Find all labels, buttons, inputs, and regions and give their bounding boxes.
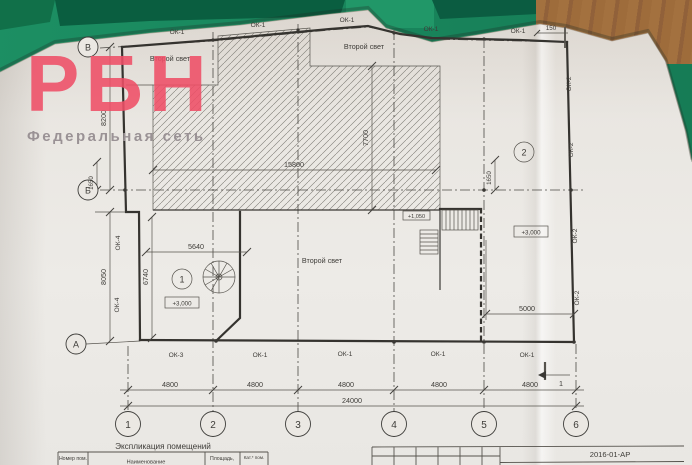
- schedule-table: Экспликация помещений Номер пом. Наимено…: [58, 442, 268, 465]
- dim-label: 4800: [431, 380, 447, 389]
- spiral-stair: [203, 261, 235, 293]
- photo-of-floor-plan: 1 1 2 3 4 5 6 В Б А 1 +3,000 2: [0, 0, 692, 465]
- schedule-header: Площадь,: [210, 456, 234, 462]
- dim-label: 1650: [88, 176, 95, 190]
- second-light-label: Второй свет: [344, 42, 385, 51]
- window-mark: ОК-1: [520, 352, 535, 359]
- schedule-header: Номер пом.: [59, 456, 87, 462]
- dim-label: 4800: [247, 380, 263, 389]
- grid-bubble-label: 2: [210, 420, 216, 431]
- dim-label: 7700: [361, 130, 370, 146]
- window-mark: ОК-4: [115, 235, 122, 250]
- schedule-header: Кат.* пом.: [244, 455, 265, 460]
- grid-bubble-label: 5: [481, 420, 487, 431]
- grid-bubble-label: 4: [391, 420, 397, 431]
- sheet-code: 2016-01-АР: [590, 450, 631, 459]
- section-number: 1: [559, 379, 563, 388]
- dim-label: 150: [546, 25, 557, 32]
- dim-label: 24000: [342, 396, 362, 405]
- dim-label: 5000: [519, 304, 535, 313]
- elevation-mark: +3,000: [172, 301, 192, 308]
- dim-label: 6740: [141, 269, 150, 285]
- l-stair: [420, 210, 478, 254]
- grid-bubble-label: А: [73, 340, 79, 350]
- grid-bubble-label: 3: [295, 420, 301, 431]
- rbn-tagline: Федеральная сеть: [27, 128, 206, 145]
- schedule-title: Экспликация помещений: [115, 442, 211, 451]
- second-light-label: Второй свет: [302, 256, 343, 265]
- grid-bubble-label: 1: [125, 420, 131, 431]
- elevation-mark: +3,000: [521, 230, 541, 237]
- window-mark: ОК-1: [511, 28, 526, 35]
- grid-bubble-label: 6: [573, 420, 579, 431]
- dim-label: 1650: [486, 171, 493, 185]
- schedule-header: Наименование: [127, 460, 166, 465]
- rbn-logo: РБН: [26, 50, 213, 117]
- room-number: 1: [179, 275, 184, 285]
- window-mark: ОК-2: [574, 290, 581, 305]
- window-mark: ОК-1: [251, 22, 266, 29]
- dim-label: 15800: [284, 160, 304, 169]
- dim-label: 4800: [522, 380, 538, 389]
- window-mark: ОК-2: [568, 142, 575, 157]
- room-number: 2: [521, 148, 526, 158]
- window-mark: ОК-1: [431, 351, 446, 358]
- window-mark: ОК-2: [566, 76, 573, 91]
- window-mark: ОК-1: [170, 29, 185, 36]
- window-mark: ОК-1: [253, 352, 268, 359]
- window-mark: ОК-1: [338, 351, 353, 358]
- title-block: 2016-01-АР: [372, 446, 684, 465]
- dim-label: 4800: [162, 380, 178, 389]
- dim-label: 4800: [338, 380, 354, 389]
- elevation-mark: +1,050: [408, 214, 425, 220]
- window-mark: ОК-1: [424, 26, 439, 33]
- window-mark: ОК-2: [572, 228, 579, 243]
- window-mark: ОК-3: [169, 352, 184, 359]
- window-mark: ОК-1: [340, 17, 355, 24]
- section-mark: 1: [538, 362, 570, 388]
- dim-label: 5640: [188, 242, 204, 251]
- window-mark: ОК-4: [114, 297, 121, 312]
- dim-label: 8050: [99, 269, 108, 285]
